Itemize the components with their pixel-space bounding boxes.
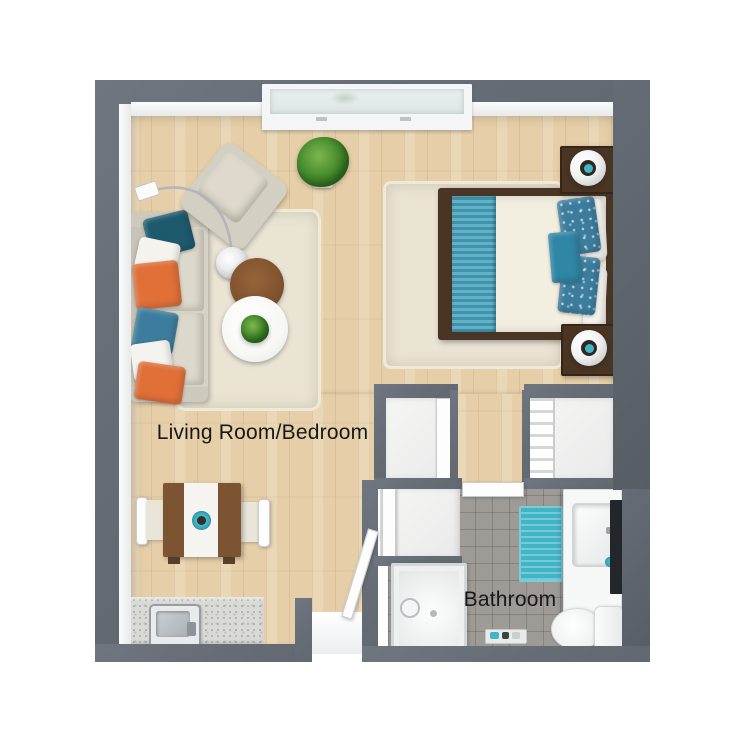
- window-handle: [400, 117, 411, 121]
- wall-hallway-left: [450, 390, 458, 486]
- closet-lower-door: [382, 488, 396, 560]
- centerpiece-bowl: [192, 511, 211, 530]
- lamp-teal-center: [585, 344, 594, 353]
- bath-mat: [519, 506, 563, 582]
- window: [262, 84, 472, 130]
- centerpiece-contents: [197, 516, 206, 525]
- outer-wall-bottom-left: [95, 644, 312, 662]
- outer-wall-right-upper: [613, 80, 650, 490]
- sink-basin: [156, 611, 190, 637]
- tray-item-dark: [502, 632, 509, 639]
- bed-runner-teal: [452, 196, 496, 332]
- window-handle: [316, 117, 327, 121]
- glass-plant-reflection: [330, 91, 360, 105]
- rolled-towel-teal: [490, 632, 499, 639]
- wall-bath-top-left: [374, 478, 462, 489]
- entry-door-jamb: [295, 598, 312, 662]
- entry-threshold: [312, 612, 362, 654]
- bed-pillow-accent: [548, 231, 582, 283]
- outer-wall-right-lower: [622, 489, 650, 662]
- tray-item-light: [512, 632, 520, 639]
- table-lamp: [571, 330, 607, 366]
- dining-chair-right-seat: [240, 502, 260, 542]
- accessory-tray: [485, 629, 527, 644]
- wall-closet-top-left: [374, 384, 458, 398]
- wall-closet-top-right: [524, 384, 616, 398]
- table-plant: [241, 315, 269, 343]
- shower-head: [400, 598, 420, 618]
- closet-right-shelves: [526, 396, 555, 482]
- bathroom-label: Bathroom: [455, 588, 565, 612]
- lamp-teal-center: [584, 164, 593, 173]
- outer-wall-bottom-bath: [362, 646, 650, 662]
- floor-plan-render: Living Room/Bedroom Bathroom: [0, 0, 740, 740]
- window-glass: [270, 89, 464, 114]
- dining-table: [163, 483, 241, 557]
- shower-drain: [430, 610, 437, 617]
- dining-chair-right-back: [258, 499, 270, 547]
- sink-faucet: [187, 622, 196, 636]
- wall-hallway-right: [522, 390, 530, 486]
- bathroom-door-open: [462, 482, 524, 497]
- throw-pillow-orange: [134, 361, 187, 405]
- wall-left-inner-face: [119, 104, 131, 644]
- wall-bath-top-right: [524, 478, 624, 489]
- wood-floor-hallway: [455, 394, 530, 486]
- kitchen-sink: [149, 604, 201, 648]
- living-room-label: Living Room/Bedroom: [120, 421, 405, 445]
- table-lamp: [570, 150, 606, 186]
